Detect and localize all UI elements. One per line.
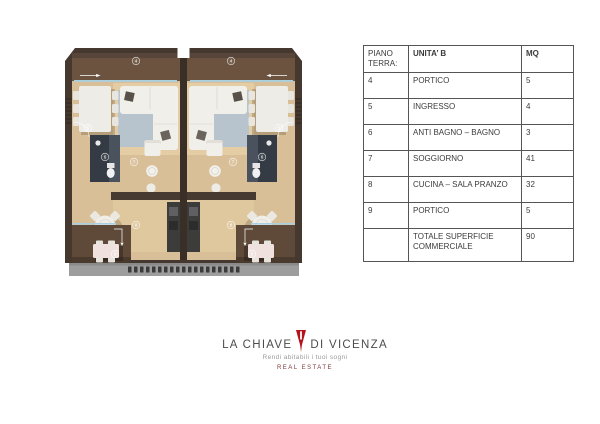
cell-room-mq: 4 bbox=[522, 99, 574, 125]
cell-room-number bbox=[364, 229, 409, 262]
brand-title: LA CHIAVE DI VICENZA bbox=[205, 330, 405, 351]
room-label-8-left: 8 bbox=[135, 223, 138, 228]
room-label-6-right: 6 bbox=[261, 155, 264, 160]
brand-title-left: LA CHIAVE bbox=[222, 340, 292, 352]
cell-room-mq: 5 bbox=[522, 73, 574, 99]
table-row: 8 CUCINA – SALA PRANZO 32 bbox=[364, 177, 574, 203]
room-label-7-left: 7 bbox=[133, 160, 136, 165]
room-label-6-left: 6 bbox=[104, 155, 107, 160]
cell-room-name: CUCINA – SALA PRANZO bbox=[409, 177, 522, 203]
room-label-5-left: 5 bbox=[87, 126, 90, 131]
key-icon bbox=[296, 330, 306, 352]
table-total-row: TOTALE SUPERFICIE COMMERCIALE 90 bbox=[364, 229, 574, 262]
table-header-mq: MQ bbox=[522, 46, 574, 73]
cell-room-name: INGRESSO bbox=[409, 99, 522, 125]
floor-plan-render: 4 5 6 7 8 9 4 5 6 7 8 9 bbox=[65, 45, 302, 277]
room-label-9-left: 9 bbox=[114, 252, 117, 257]
plan-central-wall bbox=[180, 58, 187, 260]
table-row: 7 SOGGIORNO 41 bbox=[364, 151, 574, 177]
cell-room-number: 6 bbox=[364, 125, 409, 151]
brand-subtitle: REAL ESTATE bbox=[205, 365, 405, 371]
cell-room-mq: 41 bbox=[522, 151, 574, 177]
room-label-7-right: 7 bbox=[232, 160, 235, 165]
cell-total-mq: 90 bbox=[522, 229, 574, 262]
table-row: 5 INGRESSO 4 bbox=[364, 99, 574, 125]
plan-unit-right bbox=[187, 48, 303, 263]
cell-room-mq: 3 bbox=[522, 125, 574, 151]
cell-room-mq: 32 bbox=[522, 177, 574, 203]
room-label-8-right: 8 bbox=[230, 223, 233, 228]
cell-room-number: 9 bbox=[364, 203, 409, 229]
plan-unit-left bbox=[65, 48, 181, 263]
brand-title-right: DI VICENZA bbox=[310, 340, 388, 352]
cell-room-number: 5 bbox=[364, 99, 409, 125]
table-header-floor: PIANO TERRA: bbox=[364, 46, 409, 73]
table-row: 6 ANTI BAGNO – BAGNO 3 bbox=[364, 125, 574, 151]
cell-room-name: SOGGIORNO bbox=[409, 151, 522, 177]
table-header-unit: UNITA’ B bbox=[409, 46, 522, 73]
table-header-row: PIANO TERRA: UNITA’ B MQ bbox=[364, 46, 574, 73]
brand-logo: LA CHIAVE DI VICENZA Rendi abitabili i t… bbox=[205, 330, 405, 371]
room-label-4-right: 4 bbox=[230, 59, 233, 64]
brand-tagline: Rendi abitabili i tuoi sogni bbox=[205, 354, 405, 361]
cell-room-number: 7 bbox=[364, 151, 409, 177]
room-label-4-left: 4 bbox=[135, 59, 138, 64]
cell-room-mq: 5 bbox=[522, 203, 574, 229]
cell-room-name: ANTI BAGNO – BAGNO bbox=[409, 125, 522, 151]
cell-room-name: PORTICO bbox=[409, 203, 522, 229]
room-label-9-right: 9 bbox=[251, 252, 254, 257]
floor-plan-svg: 4 5 6 7 8 9 4 5 6 7 8 9 bbox=[65, 45, 302, 277]
room-label-5-right: 5 bbox=[278, 126, 281, 131]
cell-total-label: TOTALE SUPERFICIE COMMERCIALE bbox=[409, 229, 522, 262]
table-row: 4 PORTICO 5 bbox=[364, 73, 574, 99]
cell-room-number: 8 bbox=[364, 177, 409, 203]
table-row: 9 PORTICO 5 bbox=[364, 203, 574, 229]
cell-room-number: 4 bbox=[364, 73, 409, 99]
unit-spec-table: PIANO TERRA: UNITA’ B MQ 4 PORTICO 5 5 I… bbox=[363, 45, 574, 262]
plan-roof-notch bbox=[178, 45, 190, 58]
cell-room-name: PORTICO bbox=[409, 73, 522, 99]
